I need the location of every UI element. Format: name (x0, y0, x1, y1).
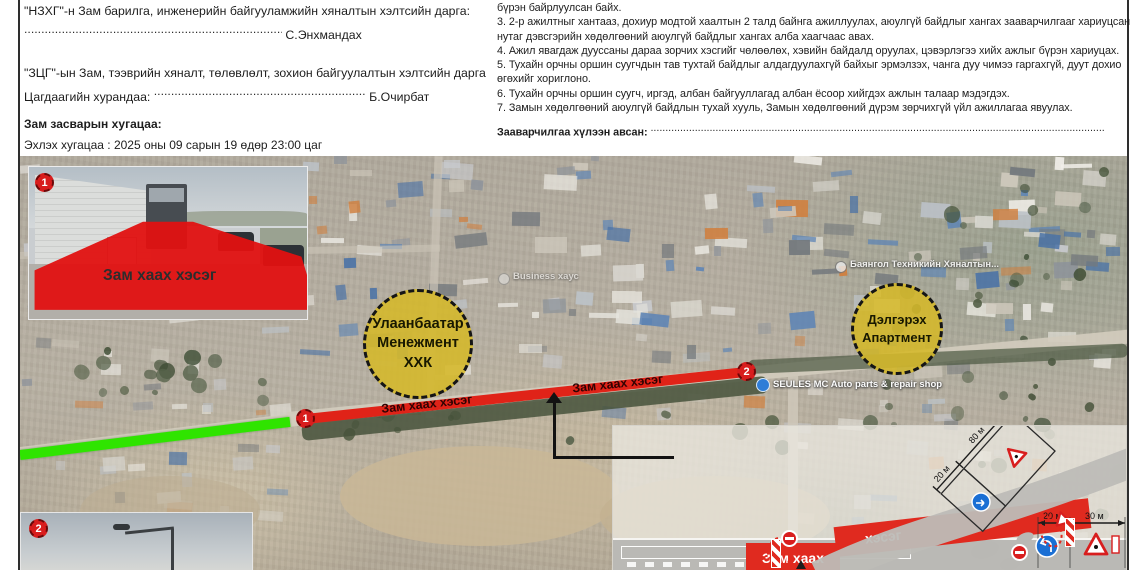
map-building (956, 278, 970, 291)
barrier-stripe-icon (1065, 518, 1075, 547)
dim-label-80m: 80 м (967, 426, 987, 445)
dim-label-30m: 30 м (1085, 511, 1104, 521)
map-building (233, 456, 254, 471)
map-building (639, 313, 670, 328)
schedule-start: Эхлэх хугацаа : 2025 оны 09 сарын 19 өдө… (24, 137, 496, 154)
map-building (612, 291, 642, 304)
map-building (1055, 157, 1064, 170)
map-building (449, 180, 464, 192)
map-building (258, 510, 284, 522)
map-building (454, 232, 487, 249)
dotted-leader: ........................................… (650, 121, 1105, 135)
poi-label-seules: SEULES MC Auto parts & repair shop (773, 379, 942, 390)
map-building (778, 206, 792, 211)
map-building (986, 303, 1013, 315)
map-building (863, 211, 882, 225)
map-building (1078, 200, 1093, 214)
dotted-leader: ........................................… (24, 21, 282, 39)
map-building (370, 288, 378, 299)
map-building (1032, 383, 1039, 390)
map-building (397, 181, 423, 198)
map-building (1005, 319, 1015, 331)
bare-ground-patch (340, 446, 620, 546)
map-building (723, 348, 732, 353)
map-building (636, 334, 647, 342)
zone2-line1: Дэлгэрэх (868, 311, 927, 329)
map-building (120, 385, 131, 396)
zone-circle-delgerekh: Дэлгэрэх Апартмент (851, 283, 943, 375)
map-building (336, 284, 347, 300)
map-building (52, 339, 79, 348)
instruction-item-3: 3. 2-р ажилтныг хантааз, дохиур модтой х… (497, 15, 1138, 44)
left-column: "НЗХГ"-н Зам барилга, инженерийн байгуул… (24, 3, 496, 173)
map-building (795, 335, 806, 346)
signature-line-2: "ЗЦГ"-ын Зам, тээврийн хяналт, төлөвлөлт… (24, 65, 496, 106)
poi-label-business: Business хаус (513, 271, 579, 282)
map-building (36, 337, 51, 348)
map-building (463, 278, 489, 285)
map-building (944, 206, 960, 223)
receipt-label: Зааварчилгаа хүлээн авсан: (497, 126, 648, 138)
map-building (824, 223, 855, 236)
callout-arrow-horizontal (553, 456, 674, 459)
map-building (615, 309, 642, 325)
poi-label-bayangol: Баянгол Техникийн Хяналтын... (850, 259, 999, 270)
map-building (666, 259, 675, 271)
map-building (133, 401, 154, 410)
inset1-caption: Зам хаах хэсэг (29, 267, 290, 285)
map-building (747, 185, 776, 193)
map-pin-icon (498, 273, 510, 285)
map-building (868, 240, 898, 247)
map-building (1023, 253, 1030, 260)
signature-2-name: Б.Очирбат (369, 90, 429, 104)
map-building (687, 345, 696, 359)
signature-line-1: "НЗХГ"-н Зам барилга, инженерийн байгуул… (24, 3, 496, 44)
diagram-roads: 20 м 80 м 20 м 30 м (613, 426, 1127, 570)
map-building (1040, 302, 1053, 312)
map-building (1027, 392, 1037, 402)
map-building (459, 217, 468, 222)
map-building (544, 174, 577, 191)
map-building (74, 401, 102, 409)
map-building (704, 193, 718, 209)
map-building (267, 488, 288, 495)
map-building (1083, 400, 1096, 413)
map-building (103, 456, 126, 472)
signature-1-name: С.Энхмандах (285, 28, 361, 42)
map-building (71, 362, 92, 382)
instruction-item-4: 4. Ажил явагдаж дууссаны дараа зорчих хэ… (497, 44, 1138, 58)
inset-photo-2: 2 (20, 512, 253, 570)
map-building (189, 376, 208, 394)
map-building (300, 349, 330, 356)
map-pin-icon (835, 261, 847, 273)
callout-arrow-vertical (553, 402, 556, 459)
map-building (1043, 273, 1050, 280)
map-building (257, 376, 268, 387)
map-building (606, 226, 630, 242)
map-building (535, 237, 567, 253)
map-building (344, 257, 356, 267)
dim-label-20m-upper: 20 м (932, 463, 952, 484)
inset-traffic-diagram: 20 м 80 м 20 м 30 м (612, 425, 1127, 570)
signature-1-title: "НЗХГ"-н Зам барилга, инженерийн байгуул… (24, 4, 470, 18)
map-building (762, 219, 773, 233)
map-building (960, 246, 988, 259)
map-building (1100, 233, 1117, 246)
map-building (309, 196, 317, 204)
map-building (670, 299, 702, 317)
map-building (714, 246, 721, 256)
map-building (850, 196, 858, 213)
map-building (1099, 166, 1110, 177)
map-building (98, 387, 109, 398)
instruction-item-7: 7. Замын хөдөлгөөний аюулгүй байдлын тух… (497, 101, 1138, 115)
schedule-heading: Зам засварын хугацаа: (24, 116, 496, 133)
map-building (696, 267, 704, 272)
map-building (56, 461, 65, 471)
map: Business хаус Баянгол Техникийн Хяналтын… (20, 156, 1127, 570)
map-building (705, 228, 728, 239)
roadworks-icon (796, 560, 806, 569)
map-building (823, 249, 848, 259)
badge-1-line: 1 (296, 409, 315, 428)
zone1-line2: Менежмент (377, 334, 459, 354)
dotted-leader: ........................................… (154, 83, 366, 101)
map-building (1039, 233, 1061, 249)
map-building (262, 326, 289, 333)
map-building (206, 352, 224, 370)
map-building (266, 444, 280, 452)
map-building (581, 244, 602, 256)
zone1-line3: ХХК (404, 354, 432, 374)
badge-2: 2 (29, 519, 48, 538)
streetlamp-arm (125, 526, 174, 534)
map-building (652, 350, 672, 363)
map-building (22, 378, 32, 386)
map-building (338, 323, 358, 336)
map-building (350, 170, 372, 176)
map-building (316, 226, 326, 235)
map-building (238, 444, 259, 452)
map-building (1087, 230, 1096, 239)
map-building (214, 379, 226, 390)
map-building (1023, 304, 1032, 320)
instruction-line: бүрэн байрлуулсан байх. (497, 1, 1138, 15)
map-building (467, 223, 482, 229)
map-building (128, 463, 146, 471)
map-building (169, 452, 188, 465)
map-building (789, 311, 816, 330)
map-building (172, 404, 187, 410)
map-building (922, 404, 932, 413)
badge-2-line: 2 (737, 362, 756, 381)
map-building (471, 179, 484, 190)
map-building (662, 244, 674, 258)
map-building (613, 265, 644, 282)
map-building (962, 371, 975, 383)
map-building (695, 245, 710, 254)
map-building (256, 410, 267, 416)
map-building (884, 402, 893, 410)
badge-1: 1 (35, 173, 54, 192)
map-building (1061, 164, 1092, 169)
map-building (575, 291, 593, 306)
map-building (542, 354, 562, 369)
map-building (789, 240, 810, 255)
map-building (975, 271, 1000, 289)
map-building (591, 156, 599, 161)
barrier-stripe-icon (771, 539, 781, 568)
map-building (498, 303, 518, 308)
map-building (151, 389, 158, 395)
zone-circle-ulaanbaatar: Улаанбаатар Менежмент ХХК (363, 289, 473, 399)
map-building (321, 238, 345, 243)
map-building (512, 212, 540, 226)
no-entry-sign-icon (1011, 544, 1028, 561)
map-building (444, 160, 460, 168)
map-building (565, 435, 577, 447)
zone1-line1: Улаанбаатар (372, 315, 463, 335)
map-building (532, 312, 540, 319)
map-building (711, 306, 735, 315)
right-column: бүрэн байрлуулсан байх. 3. 2-р ажилтныг … (497, 1, 1138, 140)
map-building (993, 209, 1018, 220)
map-building (813, 180, 840, 191)
map-building (794, 156, 823, 166)
instruction-item-5: 5. Тухайн орчны оршин суугчдын тав тухта… (497, 58, 1138, 87)
streetlamp-head (113, 524, 130, 530)
map-building (744, 395, 766, 408)
map-building (831, 170, 853, 178)
map-building (1064, 232, 1082, 239)
map-pin-icon (756, 378, 770, 392)
map-building (334, 156, 347, 164)
no-entry-sign-icon (781, 530, 798, 547)
streetlamp-pole (171, 529, 174, 570)
map-building (1106, 247, 1121, 257)
map-building (543, 299, 567, 314)
map-building (576, 170, 592, 179)
map-building (1022, 415, 1030, 423)
map-building (202, 403, 212, 412)
zone2-line2: Апартмент (862, 329, 932, 347)
map-building (758, 322, 772, 334)
map-building (349, 201, 361, 214)
inset-photo-1: Зам хаах хэсэг 1 (28, 166, 308, 320)
map-building (1070, 254, 1098, 267)
map-building (589, 313, 619, 318)
map-building (183, 349, 201, 365)
map-building (573, 163, 588, 171)
map-building (1055, 191, 1082, 207)
receipt-line: Зааварчилгаа хүлээн авсан: .............… (497, 121, 1138, 140)
map-building (951, 405, 966, 421)
map-building (997, 390, 1009, 402)
instruction-item-6: 6. Тухайн орчны оршин суугч, иргэд, алба… (497, 87, 1138, 101)
map-building (1061, 281, 1072, 291)
map-building (569, 309, 577, 317)
map-building (974, 216, 993, 229)
map-building (753, 193, 764, 208)
map-building (519, 344, 542, 353)
map-building (386, 199, 396, 207)
map-building (143, 369, 157, 380)
